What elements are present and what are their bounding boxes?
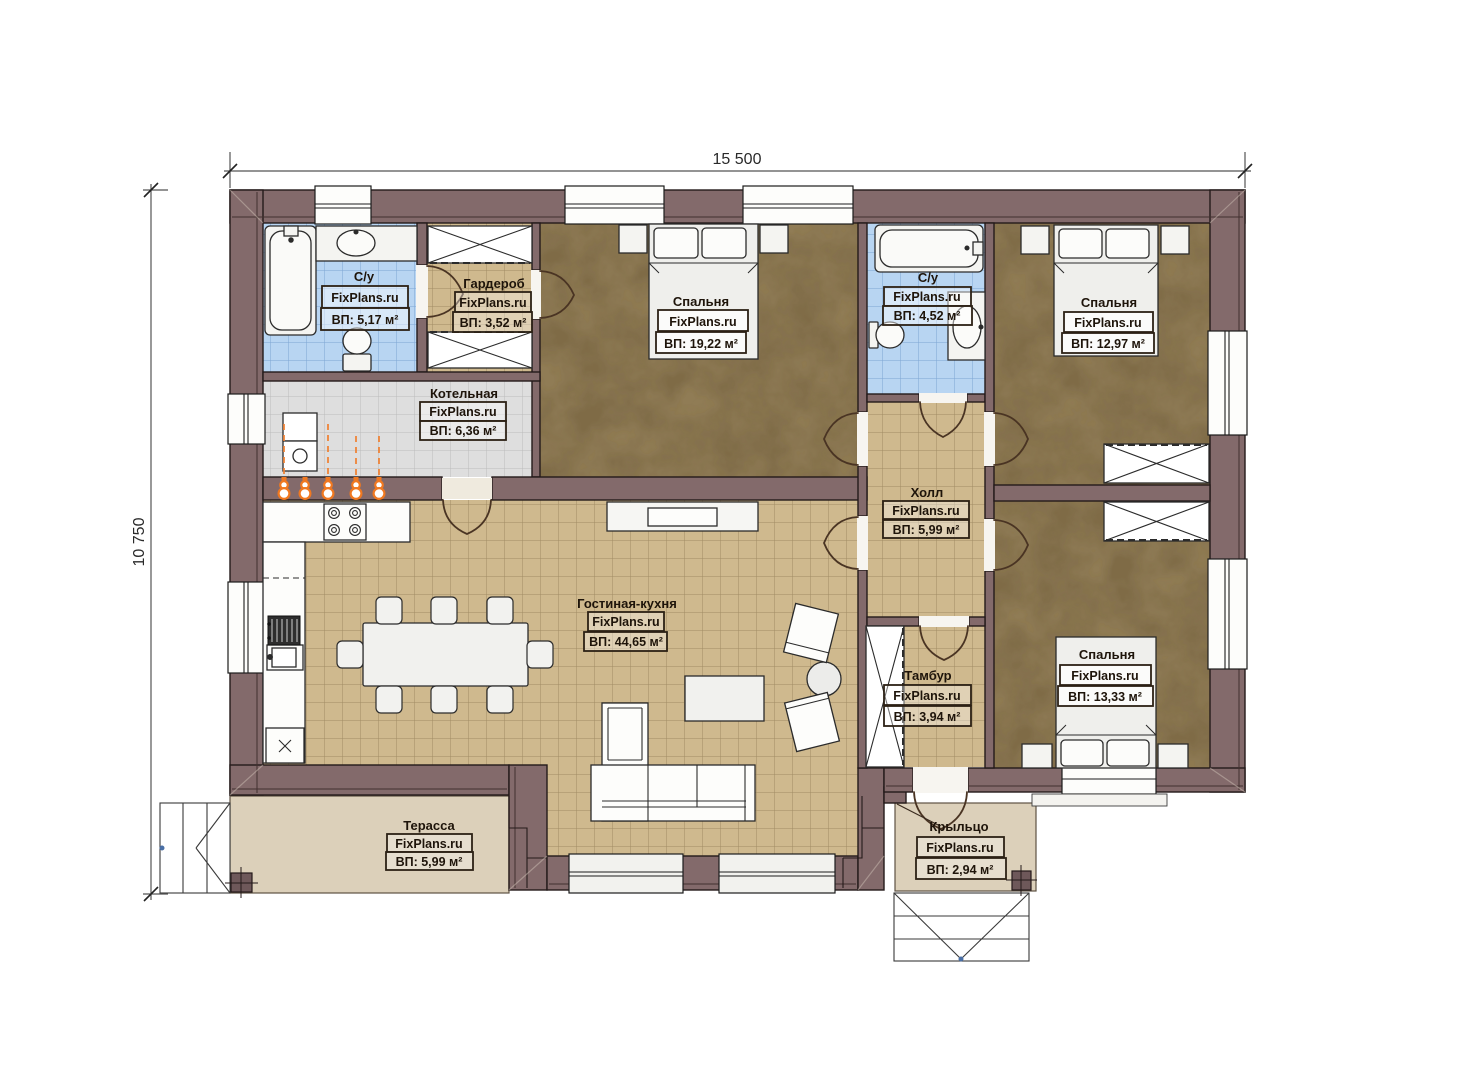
svg-text:FixPlans.ru: FixPlans.ru: [1071, 669, 1138, 683]
svg-text:FixPlans.ru: FixPlans.ru: [331, 291, 398, 305]
svg-text:С/у: С/у: [354, 269, 375, 284]
svg-text:FixPlans.ru: FixPlans.ru: [429, 405, 496, 419]
svg-text:ВП: 13,33 м²: ВП: 13,33 м²: [1068, 690, 1142, 704]
svg-text:Гостиная-кухня: Гостиная-кухня: [577, 596, 677, 611]
svg-text:Спальня: Спальня: [1081, 295, 1137, 310]
svg-text:Терасса: Терасса: [403, 818, 455, 833]
svg-text:ВП: 5,17 м²: ВП: 5,17 м²: [332, 313, 399, 327]
svg-text:ВП: 44,65 м²: ВП: 44,65 м²: [589, 635, 663, 649]
svg-text:FixPlans.ru: FixPlans.ru: [926, 841, 993, 855]
svg-text:FixPlans.ru: FixPlans.ru: [893, 689, 960, 703]
svg-text:Холл: Холл: [911, 485, 944, 500]
svg-text:С/у: С/у: [918, 270, 939, 285]
svg-text:Спальня: Спальня: [673, 294, 729, 309]
svg-text:ВП: 3,52 м²: ВП: 3,52 м²: [460, 316, 527, 330]
svg-text:Котельная: Котельная: [430, 386, 498, 401]
svg-text:FixPlans.ru: FixPlans.ru: [1074, 316, 1141, 330]
svg-text:ВП: 12,97 м²: ВП: 12,97 м²: [1071, 337, 1145, 351]
svg-text:15 500: 15 500: [713, 151, 762, 168]
svg-text:ВП: 5,99 м²: ВП: 5,99 м²: [396, 855, 463, 869]
svg-text:FixPlans.ru: FixPlans.ru: [395, 837, 462, 851]
svg-text:ВП: 3,94 м²: ВП: 3,94 м²: [894, 710, 961, 724]
svg-text:ВП: 5,99 м²: ВП: 5,99 м²: [893, 523, 960, 537]
svg-text:FixPlans.ru: FixPlans.ru: [459, 296, 526, 310]
svg-text:FixPlans.ru: FixPlans.ru: [669, 315, 736, 329]
svg-text:ВП: 19,22 м²: ВП: 19,22 м²: [664, 337, 738, 351]
svg-text:Гардероб: Гардероб: [463, 276, 524, 291]
svg-text:10 750: 10 750: [131, 517, 148, 566]
svg-text:FixPlans.ru: FixPlans.ru: [592, 615, 659, 629]
svg-text:Спальня: Спальня: [1079, 647, 1135, 662]
svg-text:Тамбур: Тамбур: [904, 668, 951, 683]
svg-text:ВП: 4,52 м²: ВП: 4,52 м²: [894, 309, 961, 323]
svg-text:Крыльцо: Крыльцо: [929, 819, 988, 834]
svg-text:FixPlans.ru: FixPlans.ru: [892, 504, 959, 518]
svg-text:FixPlans.ru: FixPlans.ru: [893, 290, 960, 304]
svg-text:ВП: 6,36 м²: ВП: 6,36 м²: [430, 424, 497, 438]
svg-text:ВП: 2,94 м²: ВП: 2,94 м²: [927, 863, 994, 877]
